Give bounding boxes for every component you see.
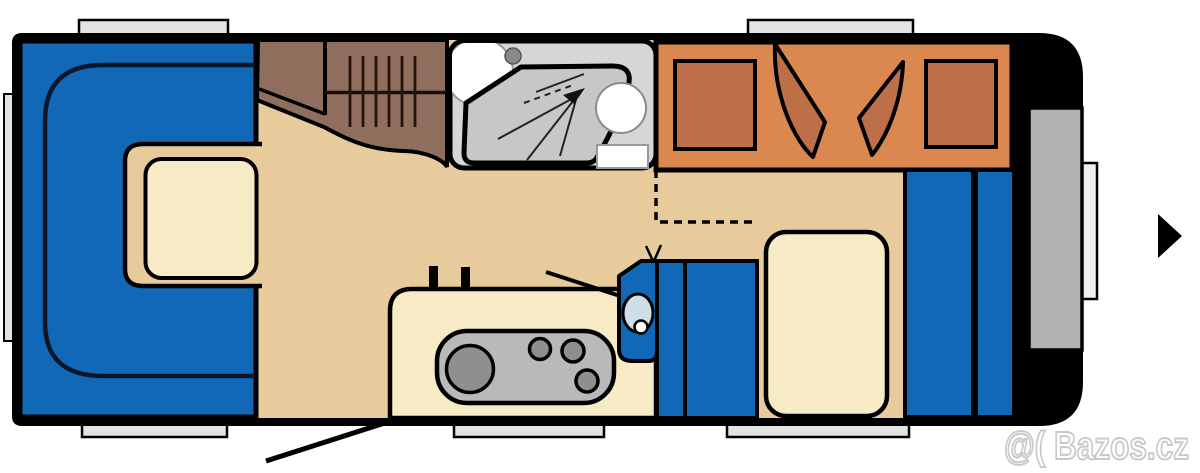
svg-text:@( Bazos.cz: @( Bazos.cz — [1004, 425, 1189, 468]
